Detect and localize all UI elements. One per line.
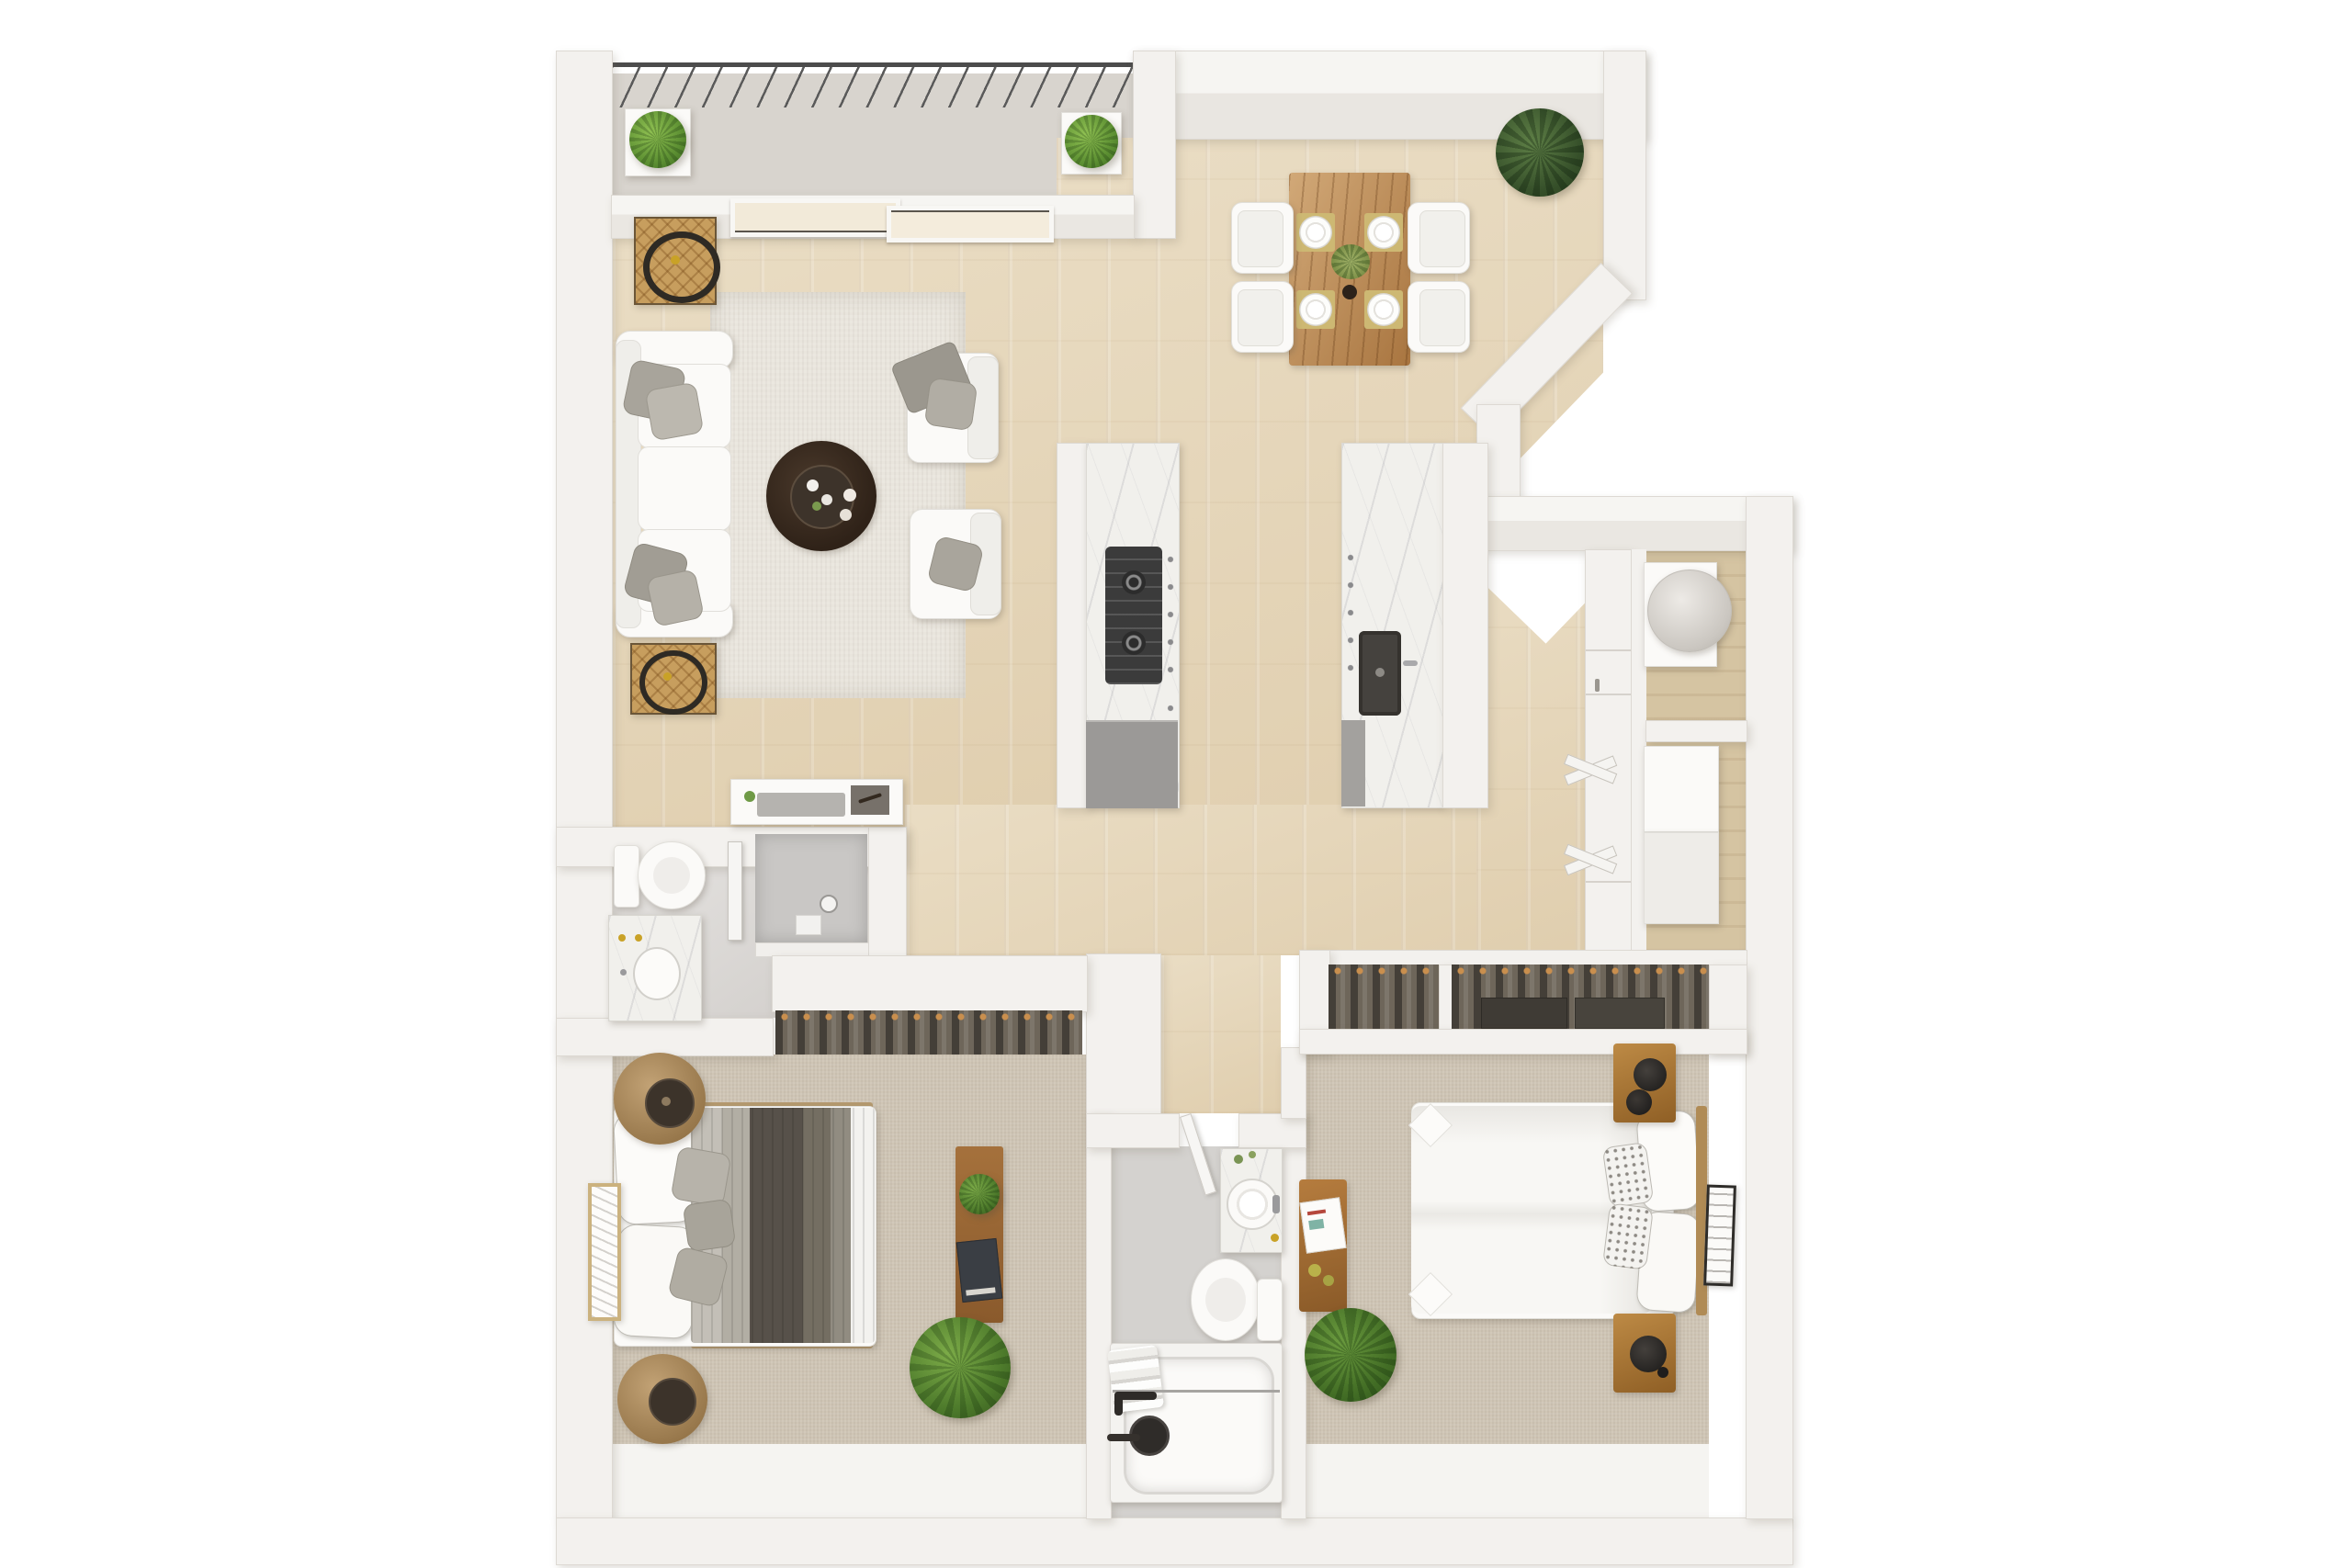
shower: [755, 834, 867, 942]
utility-mid-wall: [1645, 720, 1747, 742]
armchair-1: [907, 353, 999, 463]
linen-shelf-box-1: [1644, 746, 1719, 832]
book-red-mark: [1307, 1209, 1326, 1215]
chair-seat: [1238, 210, 1283, 267]
chair-pillow: [924, 378, 978, 432]
wall-bottom-outer: [556, 1517, 1793, 1565]
bedroom1-closet-hanging-clothes: [775, 1010, 1082, 1055]
dining-chair: [1231, 281, 1294, 353]
plate: [1299, 216, 1332, 249]
shower-shelf: [796, 915, 821, 935]
tray-dot: [661, 1097, 671, 1106]
toilet-bowl-inner: [653, 857, 690, 894]
dining-chair: [1408, 202, 1470, 274]
balcony-railing-slats: [611, 67, 1133, 107]
console-art: [851, 785, 889, 815]
plate: [1367, 216, 1400, 249]
tray-plant-dot: [812, 502, 821, 511]
nightstand-tray-decor: [649, 1378, 696, 1426]
wall-right-outer: [1746, 496, 1793, 1519]
dining-chair: [1408, 281, 1470, 353]
vanity-faucet-icon: [1272, 1195, 1280, 1213]
bedroom2-bed: [1411, 1102, 1672, 1317]
bed-accent-pillow: [683, 1199, 737, 1253]
tray-cup: [821, 494, 832, 505]
chrome-fixture-dot: [620, 969, 627, 976]
tub-handle-icon: [1107, 1434, 1140, 1441]
closet-shelf-box: [1575, 998, 1665, 1029]
coffee-table: [766, 441, 876, 551]
burner-icon: [1122, 631, 1146, 655]
desk-books: [956, 1238, 1003, 1303]
bed2-patterned-cushion: [1602, 1142, 1655, 1208]
media-console: [730, 779, 903, 825]
sink-faucet-icon: [1403, 660, 1418, 666]
lamp-handle-dot: [1657, 1367, 1668, 1378]
gold-fixture-dot: [635, 934, 642, 942]
island-base-cabinet-gray: [1341, 720, 1365, 807]
dining-table: [1289, 173, 1410, 366]
ring-center-dot: [671, 255, 680, 265]
toilet2-tank: [1257, 1279, 1283, 1341]
bedroom2-floor-plant: [1305, 1308, 1396, 1402]
bathtub: [1110, 1343, 1283, 1503]
sliding-glass-door-panel-2: [887, 206, 1054, 243]
chair-seat: [1419, 210, 1465, 267]
kitchen-half-wall: [1057, 443, 1088, 808]
chair-seat: [1238, 289, 1283, 346]
desk-plant: [959, 1174, 1000, 1214]
plate: [1299, 293, 1332, 326]
cabinet-seam: [1586, 649, 1632, 651]
wall-bathroom1-bottom: [556, 1018, 774, 1056]
vanity-greenery-dot: [1234, 1155, 1243, 1164]
book-pages-edge: [966, 1287, 995, 1295]
wall-bedroom2-left-upper: [1281, 1047, 1306, 1119]
closet-shelf-box: [1481, 998, 1567, 1029]
gas-cooktop: [1105, 547, 1162, 684]
ring-decor-icon: [643, 231, 720, 303]
bedroom1-desk: [955, 1146, 1003, 1323]
table-candle-dot: [843, 489, 856, 502]
planter-bush-icon: [629, 111, 686, 168]
bifold-closet-door: [1555, 838, 1617, 882]
hall-to-bath2-floor: [1159, 955, 1281, 1113]
bed2-patterned-cushion: [1602, 1202, 1654, 1269]
round-nightstand-bottom: [617, 1354, 707, 1444]
kitchen-base-cabinet-gray: [1086, 720, 1178, 808]
sofa: [616, 331, 733, 636]
bedroom1-closet-front: [772, 955, 1088, 1012]
ring-decor-icon: [639, 650, 707, 715]
armchair-2: [910, 509, 1001, 619]
linen-shelf-box-2: [1644, 832, 1719, 924]
planter-bush-icon: [1065, 115, 1118, 168]
gold-fixture-dot: [1271, 1234, 1279, 1242]
bedroom2-side-stool: [1299, 1179, 1347, 1312]
cabinet-seam: [1586, 694, 1632, 695]
shower-drain-head-icon: [820, 895, 838, 913]
dining-corner-plant: [1496, 108, 1584, 197]
wall-bathroom2-top-left: [1086, 1113, 1180, 1148]
bathroom2-vanity: [1220, 1148, 1283, 1253]
water-heater-tank: [1647, 570, 1732, 652]
throw-pillow: [645, 382, 705, 442]
throw-pillow: [646, 569, 705, 627]
side-table-top: [634, 217, 717, 305]
wall-bathroom2-left: [1086, 1113, 1112, 1519]
wall-dining-right: [1603, 51, 1646, 300]
door-track-line: [891, 210, 1049, 212]
tub-faucet-stub-icon: [1114, 1392, 1123, 1416]
vanity-greenery-dot: [1249, 1151, 1256, 1158]
centerpiece-greenery-icon: [1331, 244, 1370, 279]
table-lamp-icon: [1626, 1089, 1652, 1115]
toilet-bowl-inner: [1205, 1278, 1246, 1322]
bedroom2-nightstand-bottom: [1613, 1314, 1676, 1393]
bedroom2-wall-face: [1305, 1444, 1709, 1517]
bedroom2-closet-right-clothes: [1452, 964, 1709, 1029]
round-nightstand-top: [614, 1053, 706, 1145]
wall-balcony-divider: [1133, 51, 1176, 239]
gold-fixture-dot: [618, 934, 626, 942]
feather-mark-icon: [858, 793, 882, 804]
bifold-closet-door: [1555, 748, 1617, 792]
table-lamp-icon: [1634, 1058, 1667, 1091]
cabinet-knobs: [1346, 550, 1355, 688]
bedroom2-nightstand-top: [1613, 1043, 1676, 1122]
cabinet-handle-icon: [1595, 679, 1600, 692]
kitchen-sink: [1359, 631, 1401, 716]
bathroom1-vanity: [608, 915, 702, 1021]
sliding-glass-door-panel-1: [730, 198, 900, 237]
floor-plan: [0, 0, 2352, 1568]
wall-bathroom1-right: [868, 827, 907, 962]
tray-cup: [807, 479, 819, 491]
kitchen-island-back-wall: [1442, 443, 1488, 808]
plate: [1367, 293, 1400, 326]
stool-decor-dot: [1323, 1275, 1334, 1286]
stool-book: [1299, 1197, 1346, 1254]
side-table-bottom: [630, 643, 717, 715]
wall-bathroom2-right: [1281, 1113, 1306, 1519]
door-track-line: [735, 231, 896, 232]
bedroom1-wall-face: [611, 1444, 1086, 1517]
toilet1-tank: [614, 845, 639, 908]
drain-dot: [1375, 668, 1385, 677]
bedroom2-wall-art: [1703, 1184, 1736, 1286]
shower-glass-panel: [728, 841, 742, 941]
table-candle-dot: [840, 509, 852, 521]
bedroom1-floor-plant: [910, 1317, 1011, 1418]
bed-accent-pillow: [670, 1145, 731, 1207]
sofa-cushion: [638, 446, 731, 531]
dining-chair: [1231, 202, 1294, 274]
toilet2-bowl: [1191, 1258, 1261, 1341]
wall-bedroom1-right-block: [1086, 953, 1161, 1115]
planter-box-right: [1061, 112, 1122, 175]
burner-icon: [1122, 570, 1146, 594]
console-plant-dot: [744, 791, 755, 802]
leaning-wall-art: [588, 1183, 621, 1321]
planter-box-left: [625, 108, 691, 176]
centerpiece-vase: [1342, 285, 1357, 299]
bedroom2-closet-left-clothes: [1329, 964, 1439, 1029]
toilet1-bowl: [638, 841, 706, 909]
book-teal-mark: [1308, 1219, 1324, 1230]
vanity-sink: [633, 947, 681, 1000]
outside-cover-rect: [1603, 294, 1805, 514]
stool-decor-dot: [1308, 1264, 1321, 1277]
ring-center-dot: [663, 672, 672, 681]
closet2-band-bottom: [1299, 1029, 1747, 1055]
console-tray: [757, 793, 845, 817]
vanity-round-sink: [1227, 1179, 1278, 1230]
cabinet-knobs: [1166, 552, 1175, 690]
chair-seat: [1419, 289, 1465, 346]
